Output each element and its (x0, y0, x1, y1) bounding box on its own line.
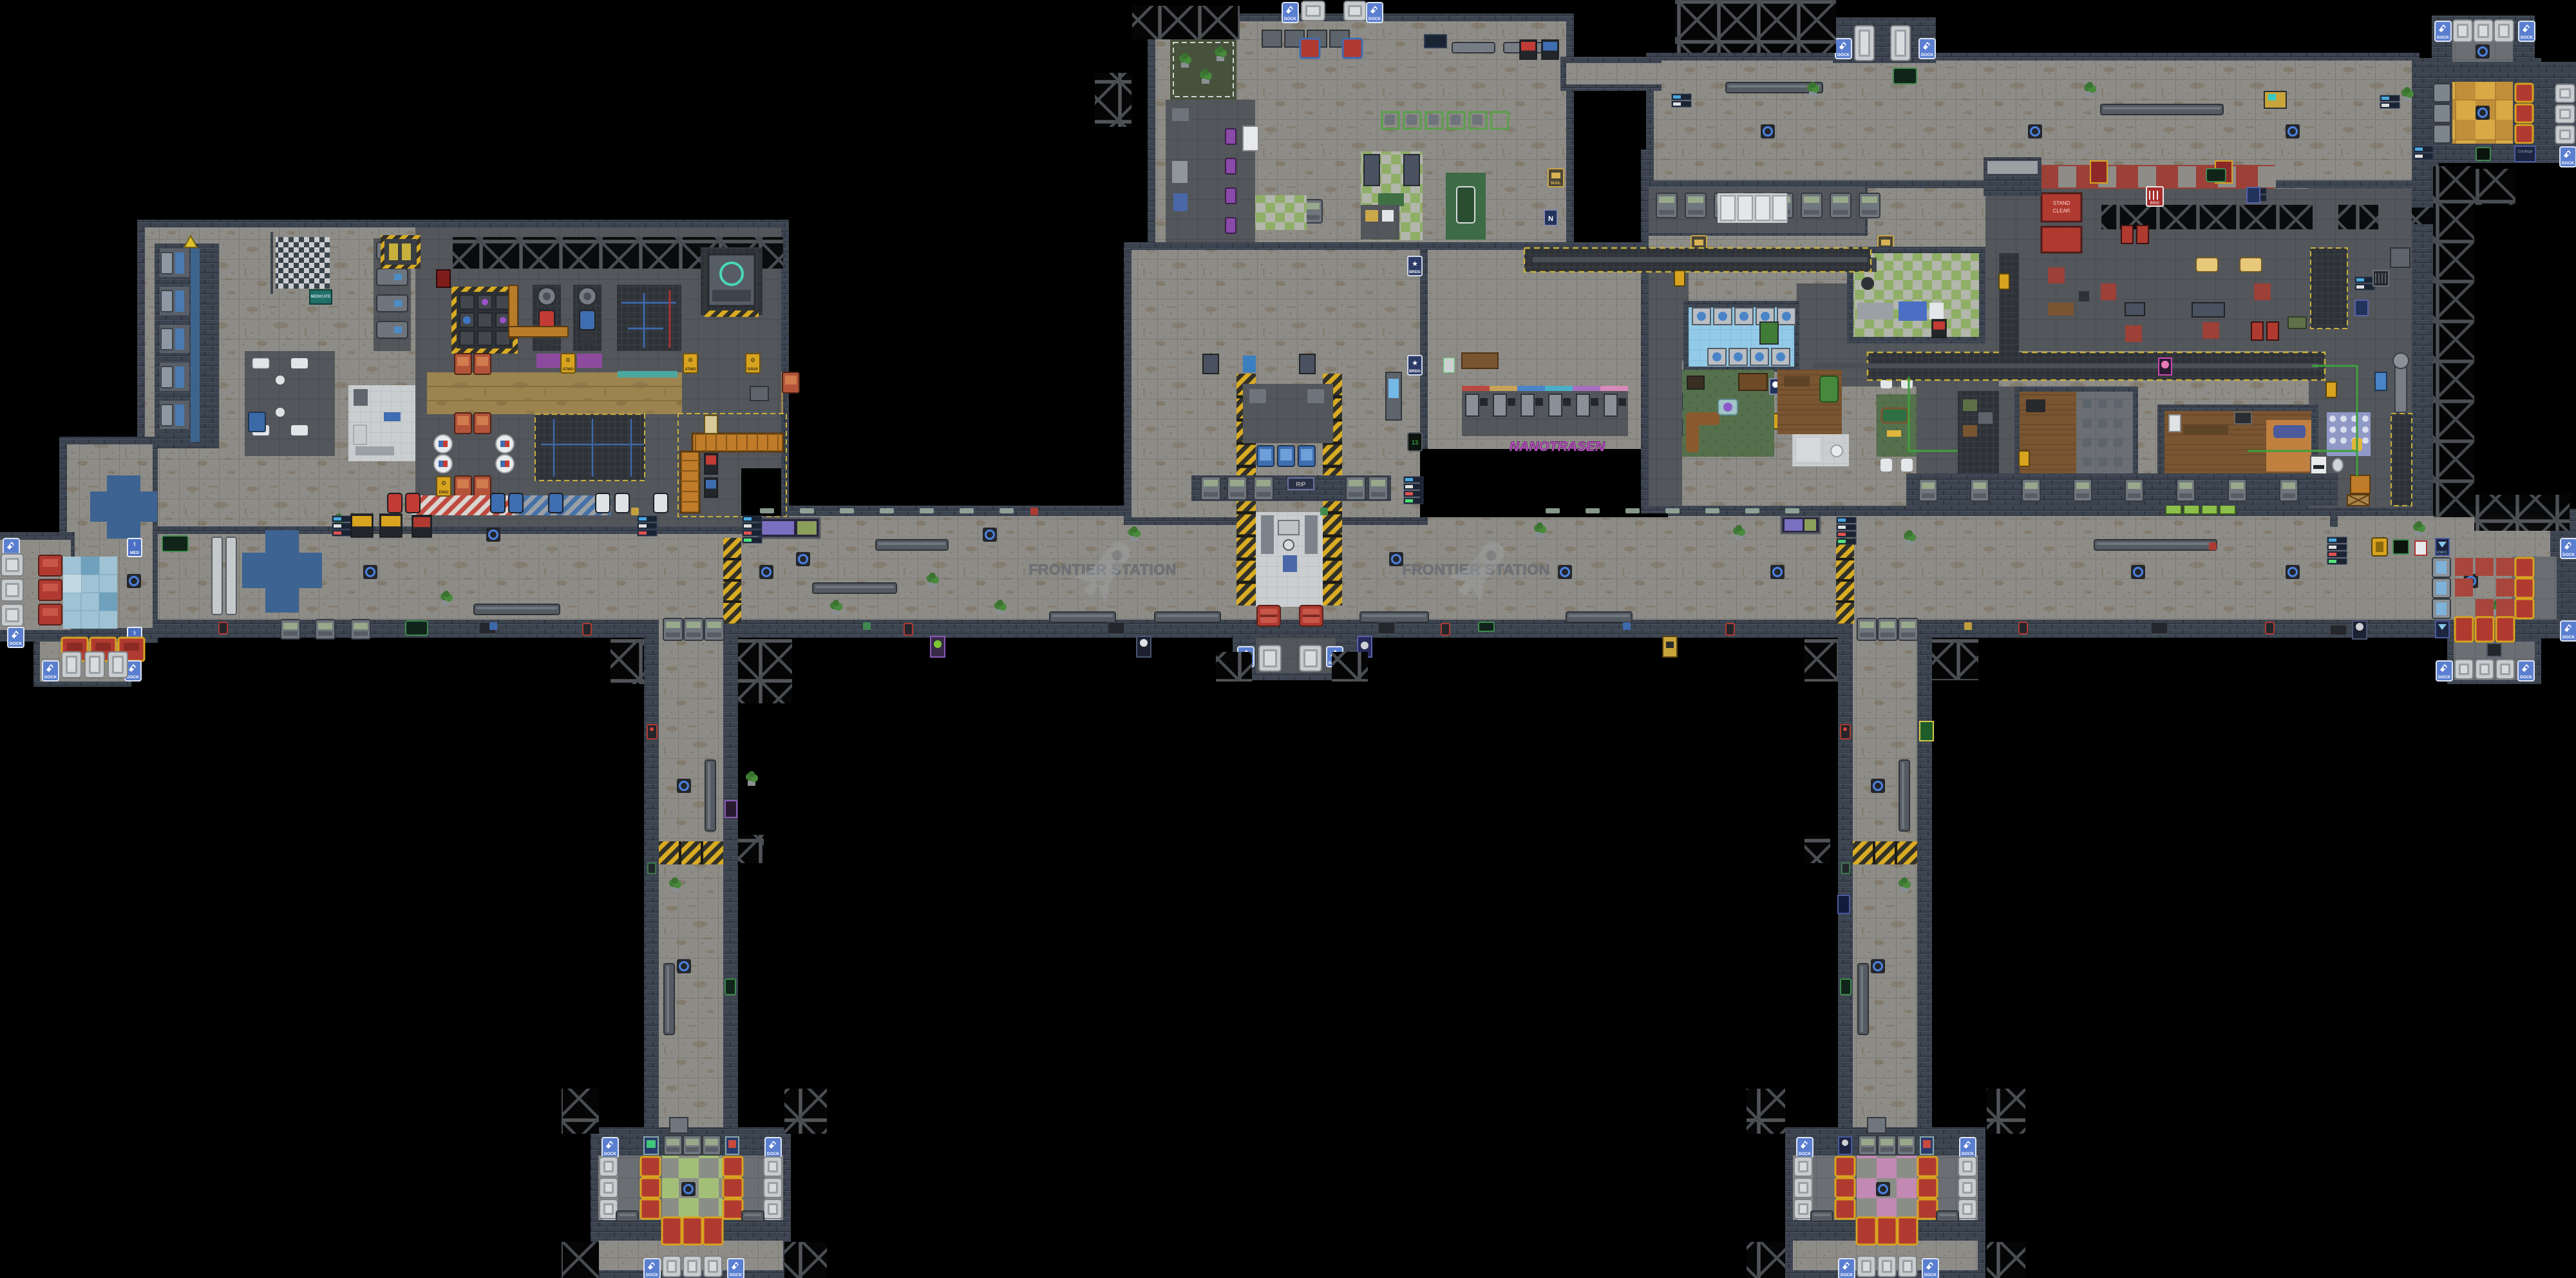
svg-text:ATMO: ATMO (685, 368, 696, 372)
svg-text:DOCK: DOCK (44, 675, 57, 680)
svg-text:★: ★ (1412, 359, 1418, 367)
svg-text:ATMO: ATMO (562, 368, 574, 372)
svg-text:MEDICATE: MEDICATE (311, 295, 331, 299)
svg-text:DOCK: DOCK (646, 1273, 658, 1277)
svg-text:GRAV: GRAV (748, 368, 759, 372)
svg-text:DOCK: DOCK (2562, 161, 2574, 166)
svg-text:DOCK: DOCK (2562, 553, 2575, 557)
svg-text:DOCK: DOCK (10, 642, 22, 646)
svg-text:MAIL: MAIL (1551, 181, 1561, 186)
svg-text:⚙: ⚙ (688, 357, 693, 363)
svg-text:DOCK: DOCK (2521, 35, 2533, 40)
svg-text:DOCK: DOCK (1924, 1273, 1937, 1277)
svg-text:DOCK: DOCK (730, 1273, 742, 1277)
svg-text:КЛАСС: КЛАСС (2437, 551, 2448, 555)
svg-text:⚙: ⚙ (565, 357, 571, 363)
svg-text:DOCK: DOCK (1841, 1273, 1853, 1277)
svg-text:DOCK: DOCK (2520, 675, 2532, 680)
svg-text:DOCK: DOCK (2438, 675, 2450, 680)
svg-text:⚕: ⚕ (133, 541, 136, 548)
svg-text:STAND: STAND (2053, 200, 2070, 206)
svg-text:DOCK: DOCK (1799, 1152, 1811, 1156)
svg-text:13: 13 (1412, 439, 1418, 446)
svg-text:⚕: ⚕ (133, 630, 136, 637)
svg-text:★: ★ (1412, 260, 1418, 268)
svg-text:DOCK: DOCK (1368, 17, 1381, 21)
svg-text:DOCK: DOCK (127, 675, 139, 680)
svg-text:⚙: ⚙ (441, 480, 446, 486)
svg-text:RIP: RIP (1296, 481, 1305, 488)
svg-text:DOCK: DOCK (604, 1152, 616, 1156)
svg-text:DOCK: DOCK (1837, 53, 1850, 57)
svg-text:DOCK: DOCK (1284, 17, 1296, 21)
svg-text:DOCK: DOCK (1962, 1152, 1974, 1156)
svg-text:⚙: ⚙ (750, 357, 755, 363)
svg-text:СООБЩИ: СООБЩИ (2518, 150, 2533, 154)
svg-text:BRDG: BRDG (1409, 271, 1421, 274)
svg-text:DOCK: DOCK (1921, 53, 1933, 57)
svg-text:DOCK: DOCK (2437, 35, 2449, 40)
svg-text:ENGI: ENGI (439, 491, 449, 495)
svg-text:BRIG: BRIG (2150, 202, 2160, 205)
svg-text:CLEAR: CLEAR (2053, 208, 2070, 214)
svg-text:MED: MED (130, 551, 140, 555)
svg-text:BRDG: BRDG (1409, 370, 1421, 374)
svg-text:DOCK: DOCK (767, 1152, 779, 1156)
svg-text:DOCK: DOCK (2562, 635, 2575, 640)
svg-text:N: N (1548, 215, 1553, 223)
svg-text:NANOTRASEN: NANOTRASEN (1510, 439, 1605, 454)
